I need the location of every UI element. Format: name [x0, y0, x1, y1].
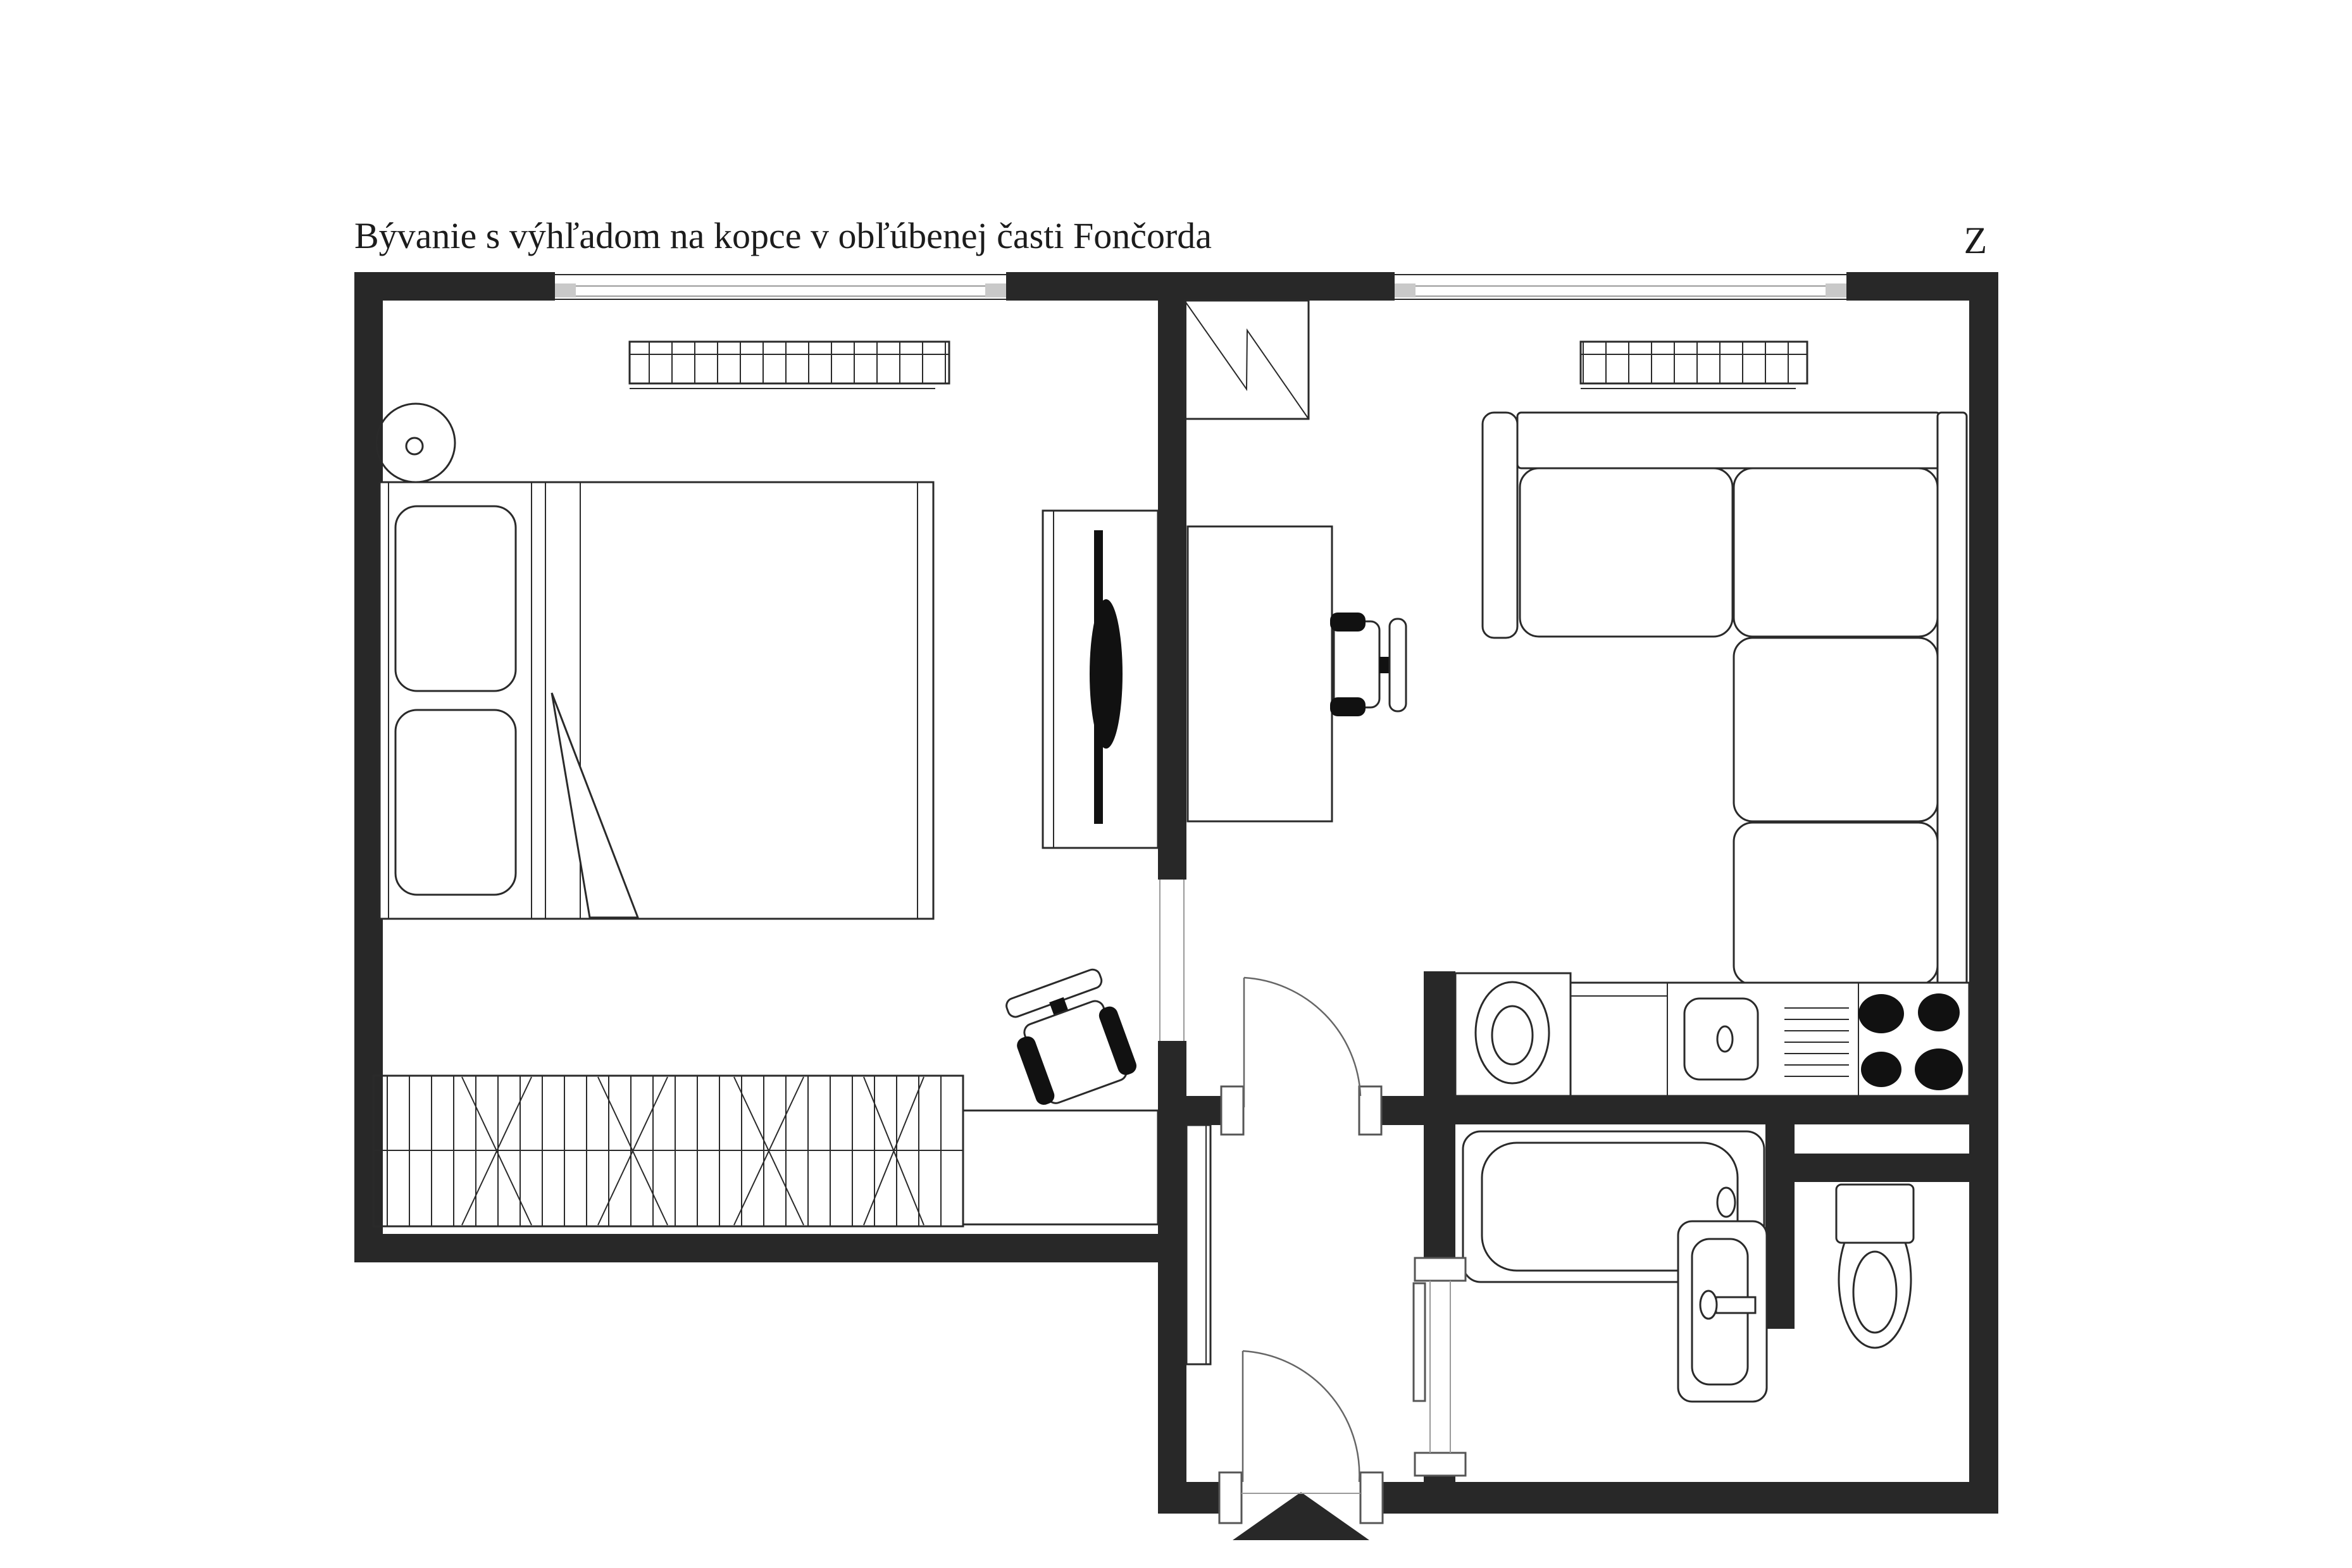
sofa-cushion-4 — [1734, 823, 1938, 985]
closet-symbol-icon — [1185, 301, 1309, 419]
entrance-arrow-icon — [1233, 1492, 1369, 1540]
wall-top-left — [354, 272, 555, 301]
door-frame-right — [1359, 1086, 1381, 1135]
door-frame-right — [1360, 1472, 1383, 1523]
wall-right — [1969, 272, 1998, 1514]
compass-label: Z — [1964, 220, 1988, 261]
toilet-tank — [1836, 1185, 1913, 1243]
washbasin-faucet — [1716, 1297, 1755, 1313]
wardrobe — [373, 1076, 963, 1226]
window-cap-right — [985, 283, 1006, 297]
living-office-chair — [1330, 613, 1406, 716]
sofa-backrest-top — [1517, 413, 1940, 468]
door-leaf — [1414, 1283, 1425, 1401]
sofa-backrest-right — [1938, 413, 1967, 985]
bedroom — [373, 342, 1158, 1226]
wall-divider-lower-hall-left — [1158, 1041, 1186, 1509]
wall-top-middle — [1006, 272, 1395, 301]
wall-bedroom-bottom — [354, 1234, 1186, 1262]
chair-armrest-top — [1330, 613, 1366, 632]
living-desk — [1188, 526, 1332, 821]
door-swing-arc — [1244, 978, 1360, 1096]
chair-seat — [1334, 621, 1379, 707]
double-bed — [380, 482, 933, 919]
washing-machine-icon — [1455, 973, 1571, 1096]
door-swing-arc — [1243, 1351, 1359, 1482]
wall-hall-top-left — [1186, 1096, 1223, 1125]
page-title: Bývanie s výhľadom na kopce v obľúbenej … — [354, 215, 1212, 256]
wall-hall-right-upper — [1424, 971, 1455, 1281]
bedroom-office-chair — [1001, 966, 1140, 1110]
drainer-icon — [1784, 999, 1849, 1080]
bedroom-desk — [963, 1111, 1158, 1224]
door-frame-bottom — [1415, 1453, 1465, 1476]
door-frame-left — [1221, 1086, 1243, 1135]
sofa-armrest-left — [1483, 413, 1517, 638]
shoe-cabinet — [1186, 1125, 1210, 1364]
wall-kitchen-bottom — [1455, 1096, 1969, 1124]
living-room-door — [1221, 978, 1381, 1135]
sofa-cushion-1 — [1520, 468, 1733, 637]
toilet-icon — [1836, 1185, 1913, 1348]
window-cap-left — [555, 283, 576, 297]
pillow-bottom — [395, 710, 516, 895]
corner-sofa — [1483, 413, 1967, 1023]
door-frame-top — [1415, 1258, 1465, 1281]
wall-bath-wc-partition — [1765, 1124, 1795, 1329]
window-cap-right — [1826, 283, 1846, 297]
bedroom-living-opening — [1160, 880, 1184, 1041]
sofa-cushion-2 — [1734, 468, 1938, 637]
tv-sideboard — [1043, 511, 1158, 848]
kitchen — [1455, 973, 1969, 1096]
burner-top-right — [1918, 993, 1960, 1031]
chair-armrest-bottom — [1330, 697, 1366, 716]
countertop — [1571, 983, 1969, 1096]
wall-wc-top — [1765, 1154, 1969, 1182]
window-cap-left — [1395, 283, 1416, 297]
burner-bottom-right — [1915, 1048, 1963, 1090]
living-radiator — [1581, 342, 1807, 389]
bathroom — [1463, 1131, 1767, 1402]
sofa-cushion-3 — [1734, 638, 1938, 821]
bedroom-window — [555, 272, 1006, 301]
living-room — [1185, 301, 1967, 1023]
bathroom-door — [1414, 1258, 1465, 1476]
ceiling-light-icon — [376, 404, 455, 482]
wall-bottom-right-of-door — [1360, 1482, 1998, 1514]
washbasin-icon — [1678, 1221, 1767, 1402]
radiator — [630, 342, 949, 389]
chair-backrest — [1390, 619, 1406, 711]
pillow-top — [395, 506, 516, 691]
living-room-window — [1395, 272, 1846, 301]
hall — [1186, 1125, 1369, 1540]
kitchen-sink-icon — [1684, 999, 1758, 1080]
wall-divider-upper — [1158, 272, 1186, 880]
burner-bottom-left — [1861, 1052, 1901, 1087]
wc — [1836, 1185, 1913, 1348]
burner-top-left — [1858, 994, 1904, 1033]
floor-plan-page: Bývanie s výhľadom na kopce v obľúbenej … — [0, 0, 2352, 1568]
door-frame-left — [1219, 1472, 1241, 1523]
floor-plan-canvas: Bývanie s výhľadom na kopce v obľúbenej … — [0, 0, 2352, 1568]
